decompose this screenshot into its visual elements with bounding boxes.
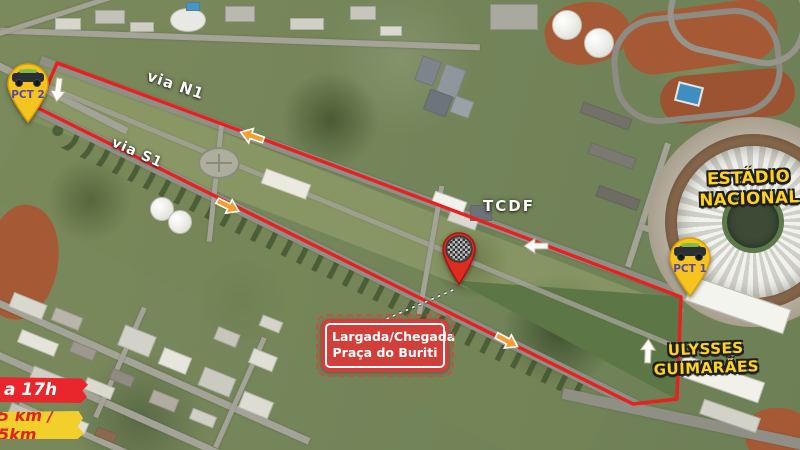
- race-course-map: via N1 via S1 TCDF ESTÁDIO NACIONAL ULYS…: [0, 0, 800, 450]
- route-arrow-right: [493, 329, 521, 354]
- place-label-ulysses-guimaraes: ULYSSES GUIMARÃES: [636, 338, 775, 380]
- start-finish-line2: Praça do Buriti: [332, 345, 438, 361]
- checkpoint-pin-pct1: PCT 1: [666, 236, 714, 302]
- start-finish-pin: [440, 231, 478, 291]
- checkpoint-label: PCT 2: [11, 89, 45, 101]
- checkpoint-pin-pct2: PCT 2: [4, 62, 52, 128]
- checkered-pin-icon: [440, 231, 478, 287]
- distance-banner: 5 km / 5km: [0, 411, 84, 439]
- car-pin-icon: PCT 2: [4, 62, 52, 124]
- course-route-layer: [0, 0, 800, 450]
- start-finish-callout: Largada/Chegada Praça do Buriti: [321, 319, 449, 372]
- car-pin-icon: PCT 1: [666, 236, 714, 298]
- time-banner: a 17h: [0, 377, 88, 403]
- place-label-estadio-nacional: ESTÁDIO NACIONAL: [682, 166, 800, 212]
- start-finish-text: Largada/Chegada Praça do Buriti: [325, 323, 445, 368]
- place-label-tcdf: TCDF: [483, 197, 535, 215]
- estadio-line2: NACIONAL: [683, 186, 800, 211]
- start-finish-line1: Largada/Chegada: [332, 329, 438, 345]
- route-arrow-left: [238, 125, 266, 147]
- checkpoint-label: PCT 1: [673, 263, 707, 275]
- time-banner-text: a 17h: [4, 380, 57, 400]
